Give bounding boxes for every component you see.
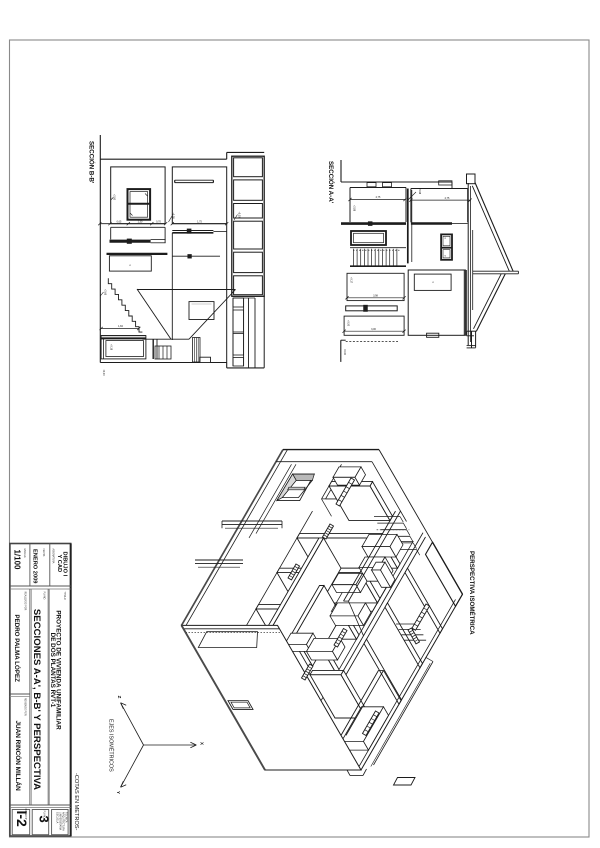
svg-text:ASIGNATURA:: ASIGNATURA:	[52, 549, 55, 565]
svg-text:3,98: 3,98	[373, 294, 378, 297]
svg-text:0,70: 0,70	[156, 220, 161, 223]
svg-text:PLANO:: PLANO:	[42, 592, 45, 601]
svg-text:1/100: 1/100	[13, 550, 22, 571]
svg-text:+2,88: +2,88	[353, 205, 356, 212]
svg-text:DE DOS PLANTAS RVT-1: DE DOS PLANTAS RVT-1	[49, 633, 56, 708]
svg-text:ESCALA:: ESCALA:	[23, 549, 26, 559]
svg-text:I-2: I-2	[14, 811, 30, 828]
svg-text:ENERO 2009: ENERO 2009	[31, 549, 37, 583]
svg-text:TECNICA: TECNICA	[65, 812, 68, 823]
svg-text:±0,00: ±0,00	[102, 370, 105, 377]
svg-text:1,75: 1,75	[197, 220, 202, 223]
svg-text:SECCIONES A-A', B-B' Y PERSPEC: SECCIONES A-A', B-B' Y PERSPECTIVA	[31, 609, 42, 790]
svg-text:1,84: 1,84	[118, 325, 123, 328]
svg-text:UNIVERSITARIA: UNIVERSITARIA	[59, 812, 62, 831]
svg-text:SECCIÓN A-A': SECCIÓN A-A'	[327, 161, 335, 204]
svg-text:PEDRO PALMA LÓPEZ: PEDRO PALMA LÓPEZ	[13, 615, 21, 683]
svg-text:±0,00: ±0,00	[343, 349, 346, 356]
svg-text:DIBUJO N°:: DIBUJO N°:	[24, 809, 26, 822]
svg-text:FECHA:: FECHA:	[42, 549, 45, 558]
svg-text:0,65: 0,65	[117, 220, 122, 223]
svg-text:-COTAS EN METROS-: -COTAS EN METROS-	[73, 773, 79, 831]
svg-text:Z: Z	[117, 696, 122, 699]
svg-text:3,06: 3,06	[371, 328, 376, 331]
svg-text:2,75: 2,75	[445, 197, 450, 200]
svg-text:PLANO N°:: PLANO N°:	[43, 811, 46, 823]
svg-text:+2,65: +2,65	[104, 289, 107, 296]
svg-text:+5,30: +5,30	[238, 212, 241, 219]
svg-text:ESCUELA: ESCUELA	[56, 812, 59, 824]
svg-text:EJES ISOMÉTRICOS: EJES ISOMÉTRICOS	[107, 719, 114, 772]
svg-text:JUAN RINCÓN MILLÁN: JUAN RINCÓN MILLÁN	[14, 721, 23, 792]
svg-text:PERSPECTIVA ISOMÉTRICA: PERSPECTIVA ISOMÉTRICA	[468, 551, 476, 635]
svg-text:Y: Y	[116, 791, 121, 794]
svg-text:+0,00: +0,00	[347, 320, 350, 327]
svg-text:2,75: 2,75	[376, 196, 381, 199]
svg-text:+5,98: +5,98	[418, 188, 421, 195]
svg-text:+0,17: +0,17	[350, 277, 353, 284]
svg-text:ARQUITECTURA: ARQUITECTURA	[62, 812, 65, 831]
svg-text:Y CAD: Y CAD	[56, 555, 62, 573]
svg-text:SECCIÓN B-B': SECCIÓN B-B'	[88, 141, 96, 184]
svg-text:REALIZADO POR:: REALIZADO POR:	[24, 592, 27, 612]
svg-text:TITULO:: TITULO:	[63, 592, 65, 601]
svg-text:1,30: 1,30	[138, 220, 143, 223]
svg-text:X: X	[200, 742, 205, 745]
svg-text:REVISADO POR:: REVISADO POR:	[24, 698, 27, 716]
svg-text:+0,18: +0,18	[110, 344, 113, 351]
svg-text:+5,08: +5,08	[172, 213, 175, 220]
